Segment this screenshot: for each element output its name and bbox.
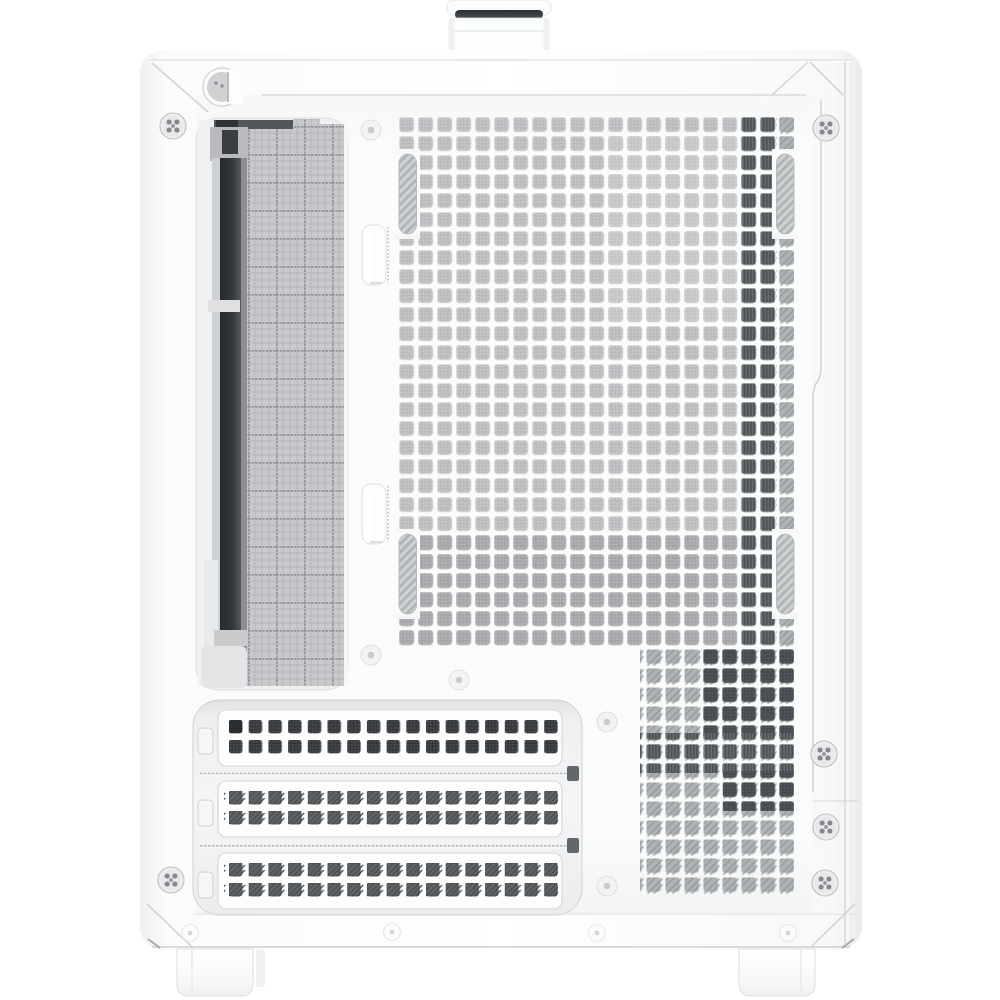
screw [813,115,839,141]
grille-top-tab [293,119,320,127]
screw [158,867,184,893]
mesh-lower-rows [397,533,739,647]
rivet [361,120,381,140]
vent-slot [399,534,417,614]
rivet [597,712,617,732]
clip-tab [362,484,388,544]
mesh-interior-columns [739,115,776,647]
vent-slot [399,154,417,234]
slot-latch-nub [567,766,579,781]
carry-handle [447,0,551,58]
case-feet [177,949,815,996]
vent-slot [777,154,795,234]
thumbscrew-recess [203,68,243,106]
detent [182,925,199,942]
screw [813,814,839,840]
mesh-panel [397,115,794,647]
dark-bracket-bar [220,158,241,660]
rivet [449,670,469,690]
screw [812,870,838,896]
slot-side-tabs [198,728,213,898]
radiator-window [196,118,348,690]
vent-slot [777,534,795,614]
clip-tab [362,225,388,285]
detent [589,925,606,942]
rivet [361,645,381,665]
bracket-foot [201,646,247,688]
foot-right [739,949,815,996]
slot-latch-nub [567,838,579,853]
product-photo-canvas [0,0,1000,1000]
expansion-slot-area [193,700,582,915]
bracket-shelf [214,630,248,646]
detent [384,924,401,941]
screw [160,113,186,139]
screw [811,741,837,767]
foot-left [177,949,253,996]
pc-case-illustration [0,0,1000,1000]
mesh-lighter-zone [606,134,746,324]
mesh-dark-interior [699,648,794,736]
rivet [597,876,617,896]
detent [780,925,797,942]
bracket-step-upper [208,300,240,312]
fine-mesh-grille [246,124,344,686]
foot-left-sliver [256,949,265,987]
mesh-block-lower-right [640,648,794,895]
